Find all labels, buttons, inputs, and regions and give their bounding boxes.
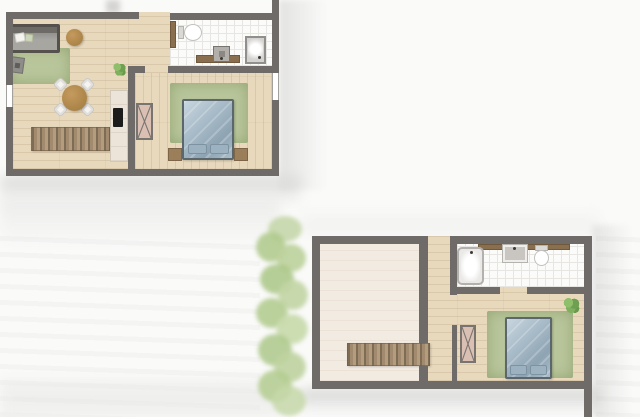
bathtub	[457, 247, 484, 285]
sink-faucet-icon	[513, 247, 516, 250]
large-room-right-wall-upper	[419, 244, 428, 343]
nightstand	[234, 148, 248, 161]
left-wall-upper	[6, 12, 13, 85]
bathroom-left-wall	[450, 236, 457, 295]
top-wall-left	[6, 12, 139, 19]
bed-pillow	[510, 365, 527, 375]
wash-bottom-left-texture	[0, 235, 260, 417]
double-bed	[182, 99, 234, 160]
left-wall-lower	[6, 107, 13, 176]
bathroom-bottom-wall-right	[527, 287, 584, 294]
double-bed	[505, 317, 552, 379]
wardrobe-x-icon	[138, 105, 151, 138]
wardrobe	[136, 103, 153, 140]
left-wall	[312, 236, 320, 389]
bed-pillow	[210, 144, 229, 154]
faucet-icon	[220, 57, 223, 60]
large-room-right-wall-lower	[419, 366, 428, 381]
toilet-wood-panel	[170, 21, 176, 48]
right-wall-lower	[272, 100, 279, 176]
living-room-plant	[113, 62, 126, 76]
bathtub-faucet-icon	[470, 251, 473, 254]
bathroom-bottom-wall	[168, 66, 272, 73]
top-wall-left	[312, 236, 428, 244]
entry-hall-floor	[128, 12, 170, 73]
floor-plan-sheet	[0, 0, 640, 417]
toilet	[533, 245, 550, 266]
wash-right-margin-texture	[596, 230, 640, 417]
bottom-wall	[312, 381, 592, 389]
shower	[245, 36, 266, 64]
wardrobe-x-icon	[462, 327, 474, 361]
toilet-bowl	[184, 24, 202, 41]
wash-bottom-left-patch	[0, 380, 280, 417]
bedroom-hall-wall	[452, 325, 457, 381]
bathtub-basin	[461, 251, 480, 281]
hall-wall-stub	[128, 66, 145, 73]
shower-drain-icon	[258, 56, 261, 59]
coffee-table	[66, 29, 83, 46]
top-wall-right	[450, 236, 592, 244]
sofa	[10, 24, 60, 53]
lower-floor-plan	[312, 236, 592, 417]
wash-above-lower-plan	[300, 205, 600, 233]
bedroom-partition-wall	[128, 66, 135, 169]
wash-right-of-lower-plan	[592, 225, 632, 417]
upper-floor-plan	[6, 0, 280, 205]
right-window	[272, 73, 279, 100]
bed-pillow	[188, 144, 207, 154]
bedroom-plant	[563, 297, 580, 313]
bottom-wall	[6, 169, 279, 176]
top-wall-right	[170, 13, 272, 20]
right-wall-upper	[272, 0, 279, 73]
nightstand	[168, 148, 182, 161]
bathroom-bottom-wall-left	[457, 287, 500, 294]
dining-table	[62, 85, 87, 111]
staircase	[347, 343, 430, 366]
greenery-strip	[250, 214, 316, 417]
staircase	[31, 127, 110, 151]
right-wall	[584, 236, 592, 417]
cooktop	[113, 108, 123, 127]
shrub	[272, 386, 306, 416]
left-window	[6, 85, 13, 107]
toilet	[178, 24, 202, 41]
bed-pillow	[530, 365, 547, 375]
wash-right-of-upper-plan	[279, 0, 327, 190]
wardrobe	[460, 325, 476, 363]
wash-mid-left	[0, 200, 280, 250]
toilet-bowl	[534, 250, 549, 266]
sofa-cushion-green	[25, 34, 34, 43]
